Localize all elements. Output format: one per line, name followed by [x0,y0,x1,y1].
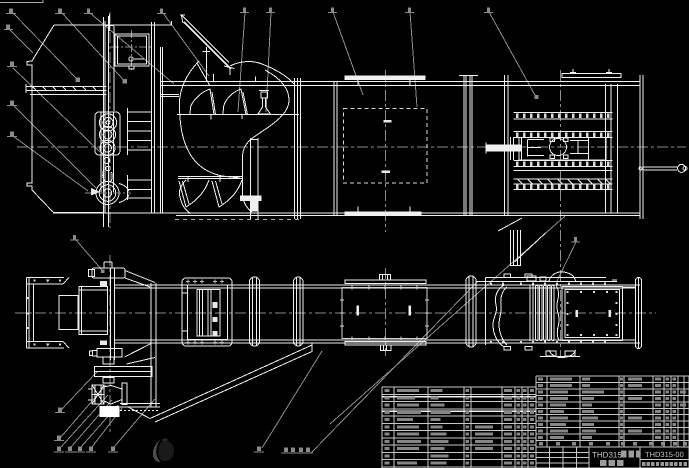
svg-text:THD315: THD315 [592,451,622,460]
svg-text:THD315-00: THD315-00 [645,450,684,459]
